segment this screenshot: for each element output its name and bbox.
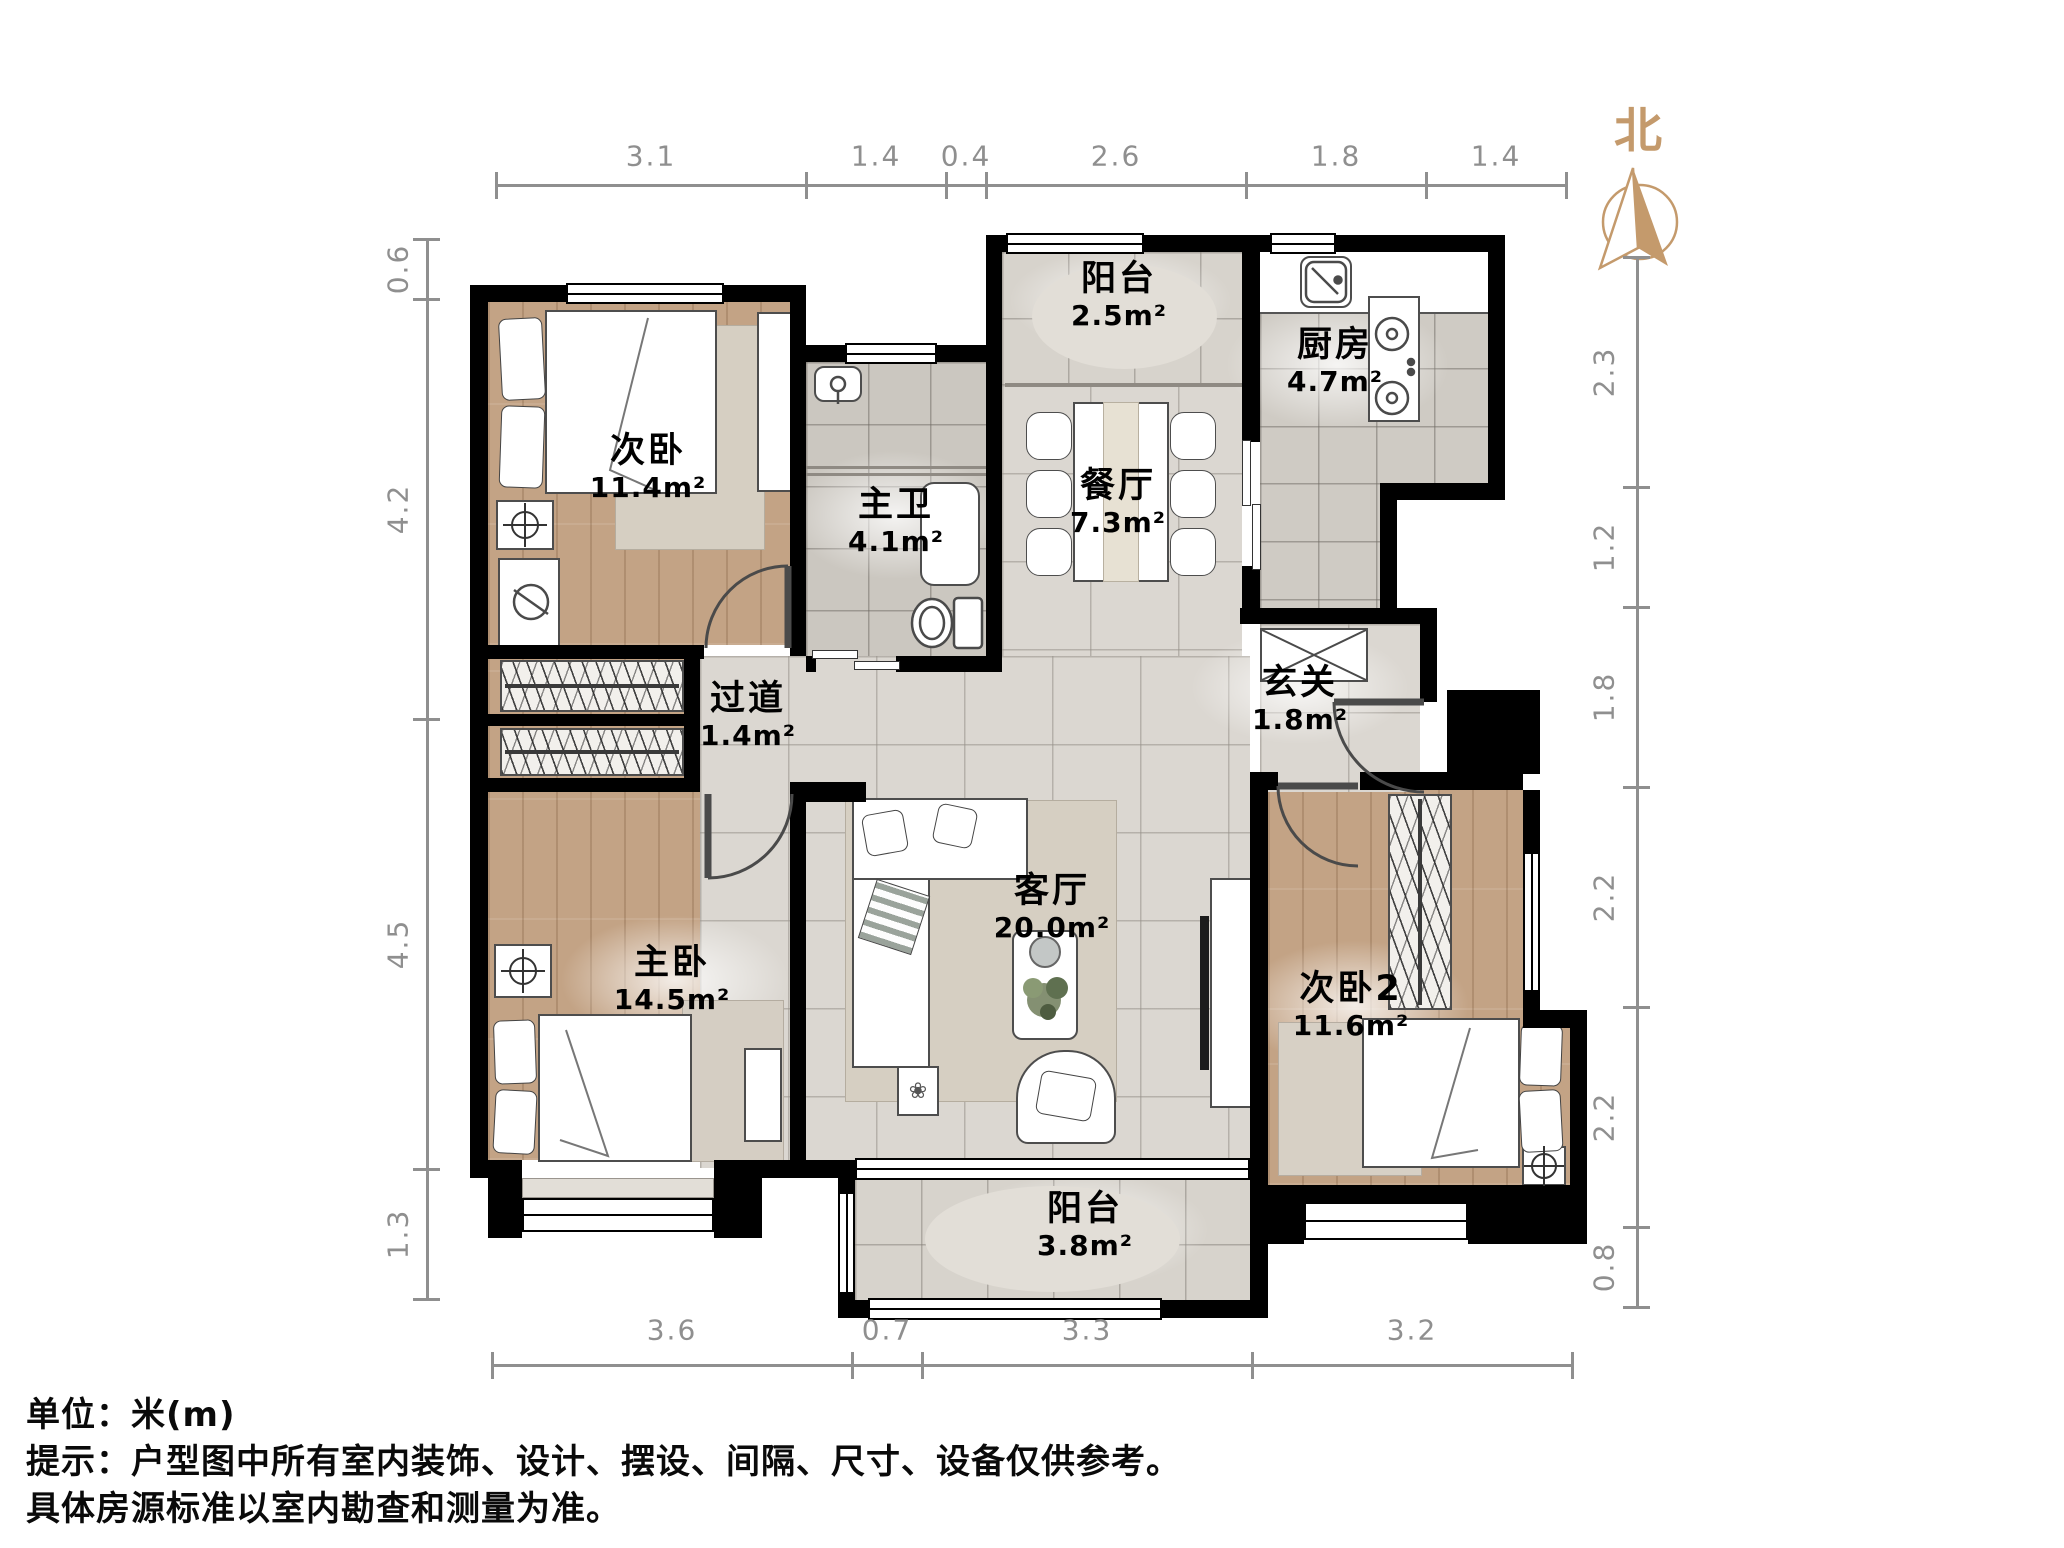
dim-tick [1623, 606, 1650, 609]
room-area: 1.4m² [700, 719, 796, 753]
dim-value: 0.6 [382, 244, 415, 295]
room-name: 阳台 [1071, 259, 1167, 299]
floorplan-page: { "compass": { "label": "北" }, "rooms": … [0, 0, 2064, 1548]
dim-value: 1.8 [1588, 672, 1621, 723]
room-label-hallway: 过道 1.4m² [700, 679, 796, 753]
lamp-icon [501, 503, 1564, 1186]
dim-tick [413, 718, 440, 721]
room-area: 11.4m² [590, 471, 707, 505]
dim-value: 1.4 [851, 140, 902, 173]
room-name: 主卧 [614, 943, 731, 983]
room-area: 14.5m² [614, 983, 731, 1017]
dim-tick [1623, 1006, 1650, 1009]
dim-tick [1571, 1352, 1574, 1379]
room-area: 1.8m² [1252, 703, 1348, 737]
kitchen-sink-icon [1306, 262, 1346, 302]
room-name: 餐厅 [1070, 466, 1166, 506]
door-arc-master [708, 794, 792, 878]
note-line-unit: 单位：米(m) [26, 1392, 1181, 1439]
room-name: 过道 [700, 679, 796, 719]
dim-tick [1623, 1226, 1650, 1229]
dim-tick [1623, 256, 1650, 259]
room-area: 4.7m² [1287, 365, 1383, 399]
dim-value: 2.2 [1588, 872, 1621, 923]
room-label-bath: 主卫 4.1m² [848, 485, 944, 559]
room-label-foyer: 玄关 1.8m² [1252, 663, 1348, 737]
dim-value: 4.2 [382, 484, 415, 535]
dim-tick [413, 298, 440, 301]
dim-tick [1623, 486, 1650, 489]
door-arc-bedroom-n [706, 566, 788, 648]
room-name: 次卧 [590, 431, 707, 471]
coffee-table-decor [1023, 937, 1068, 1020]
dim-tick [945, 172, 948, 199]
north-compass-icon [1600, 168, 1677, 268]
dim-value: 0.8 [1588, 1242, 1621, 1293]
plan-vector-overlay [0, 0, 2064, 1548]
toilet-icon [912, 598, 982, 648]
note-line-disclaimer2: 具体房源标准以室内勘查和测量为准。 [26, 1486, 1181, 1533]
room-name: 次卧2 [1293, 969, 1410, 1009]
note-line-disclaimer: 提示：户型图中所有室内装饰、设计、摆设、间隔、尺寸、设备仅供参考。 [26, 1439, 1181, 1486]
dim-value: 4.5 [382, 919, 415, 970]
dim-tick [413, 1298, 440, 1301]
dim-tick [921, 1352, 924, 1379]
dim-value: 2.3 [1588, 347, 1621, 398]
room-area: 2.5m² [1071, 299, 1167, 333]
room-area: 11.6m² [1293, 1009, 1410, 1043]
dimension-line-right [1636, 257, 1639, 1307]
dim-tick [851, 1352, 854, 1379]
dim-tick [491, 1352, 494, 1379]
dim-tick [1425, 172, 1428, 199]
room-name: 阳台 [1037, 1189, 1133, 1229]
room-label-bedroom-n: 次卧 11.4m² [590, 431, 707, 505]
dim-value: 1.3 [382, 1209, 415, 1260]
dim-tick [805, 172, 808, 199]
room-name: 主卫 [848, 485, 944, 525]
room-label-master: 主卧 14.5m² [614, 943, 731, 1017]
room-label-dining: 餐厅 7.3m² [1070, 466, 1166, 540]
room-label-living: 客厅 20.0m² [994, 871, 1111, 945]
dim-value: 2.2 [1588, 1092, 1621, 1143]
dim-value: 1.4 [1471, 140, 1522, 173]
dim-tick [495, 172, 498, 199]
desk-chair-icon [514, 585, 548, 619]
room-area: 7.3m² [1070, 506, 1166, 540]
dim-value: 2.6 [1091, 140, 1142, 173]
room-area: 3.8m² [1037, 1229, 1133, 1263]
door-arc-bedroom-s [1278, 786, 1358, 866]
dim-tick [1251, 1352, 1254, 1379]
room-label-balcony-n: 阳台 2.5m² [1071, 259, 1167, 333]
plan-notes: 单位：米(m) 提示：户型图中所有室内装饰、设计、摆设、间隔、尺寸、设备仅供参考… [26, 1392, 1181, 1533]
dimension-line-top [496, 184, 1566, 187]
room-area: 20.0m² [994, 911, 1111, 945]
dimension-line-left [426, 239, 429, 1299]
room-label-bedroom-s: 次卧2 11.6m² [1293, 969, 1410, 1043]
room-label-balcony-s: 阳台 3.8m² [1037, 1189, 1133, 1263]
dim-tick [1623, 786, 1650, 789]
north-label: 北 [1614, 91, 1662, 161]
room-label-kitchen: 厨房 4.7m² [1287, 325, 1383, 399]
dim-value: 0.4 [941, 140, 992, 173]
dim-tick [413, 238, 440, 241]
dim-tick [1565, 172, 1568, 199]
room-name: 玄关 [1252, 663, 1348, 703]
bath-faucet-icon [831, 377, 845, 404]
dim-tick [413, 1168, 440, 1171]
dim-value: 3.3 [1062, 1314, 1113, 1347]
room-name: 厨房 [1287, 325, 1383, 365]
dim-tick [985, 172, 988, 199]
dim-tick [1623, 1306, 1650, 1309]
dim-value: 1.8 [1311, 140, 1362, 173]
dimension-line-bottom [492, 1364, 1572, 1367]
dim-tick [1245, 172, 1248, 199]
dim-value: 1.2 [1588, 522, 1621, 573]
dim-value: 3.1 [626, 140, 677, 173]
room-name: 客厅 [994, 871, 1111, 911]
dim-value: 3.2 [1387, 1314, 1438, 1347]
dim-value: 3.6 [647, 1314, 698, 1347]
dim-value: 0.7 [862, 1314, 913, 1347]
room-area: 4.1m² [848, 525, 944, 559]
